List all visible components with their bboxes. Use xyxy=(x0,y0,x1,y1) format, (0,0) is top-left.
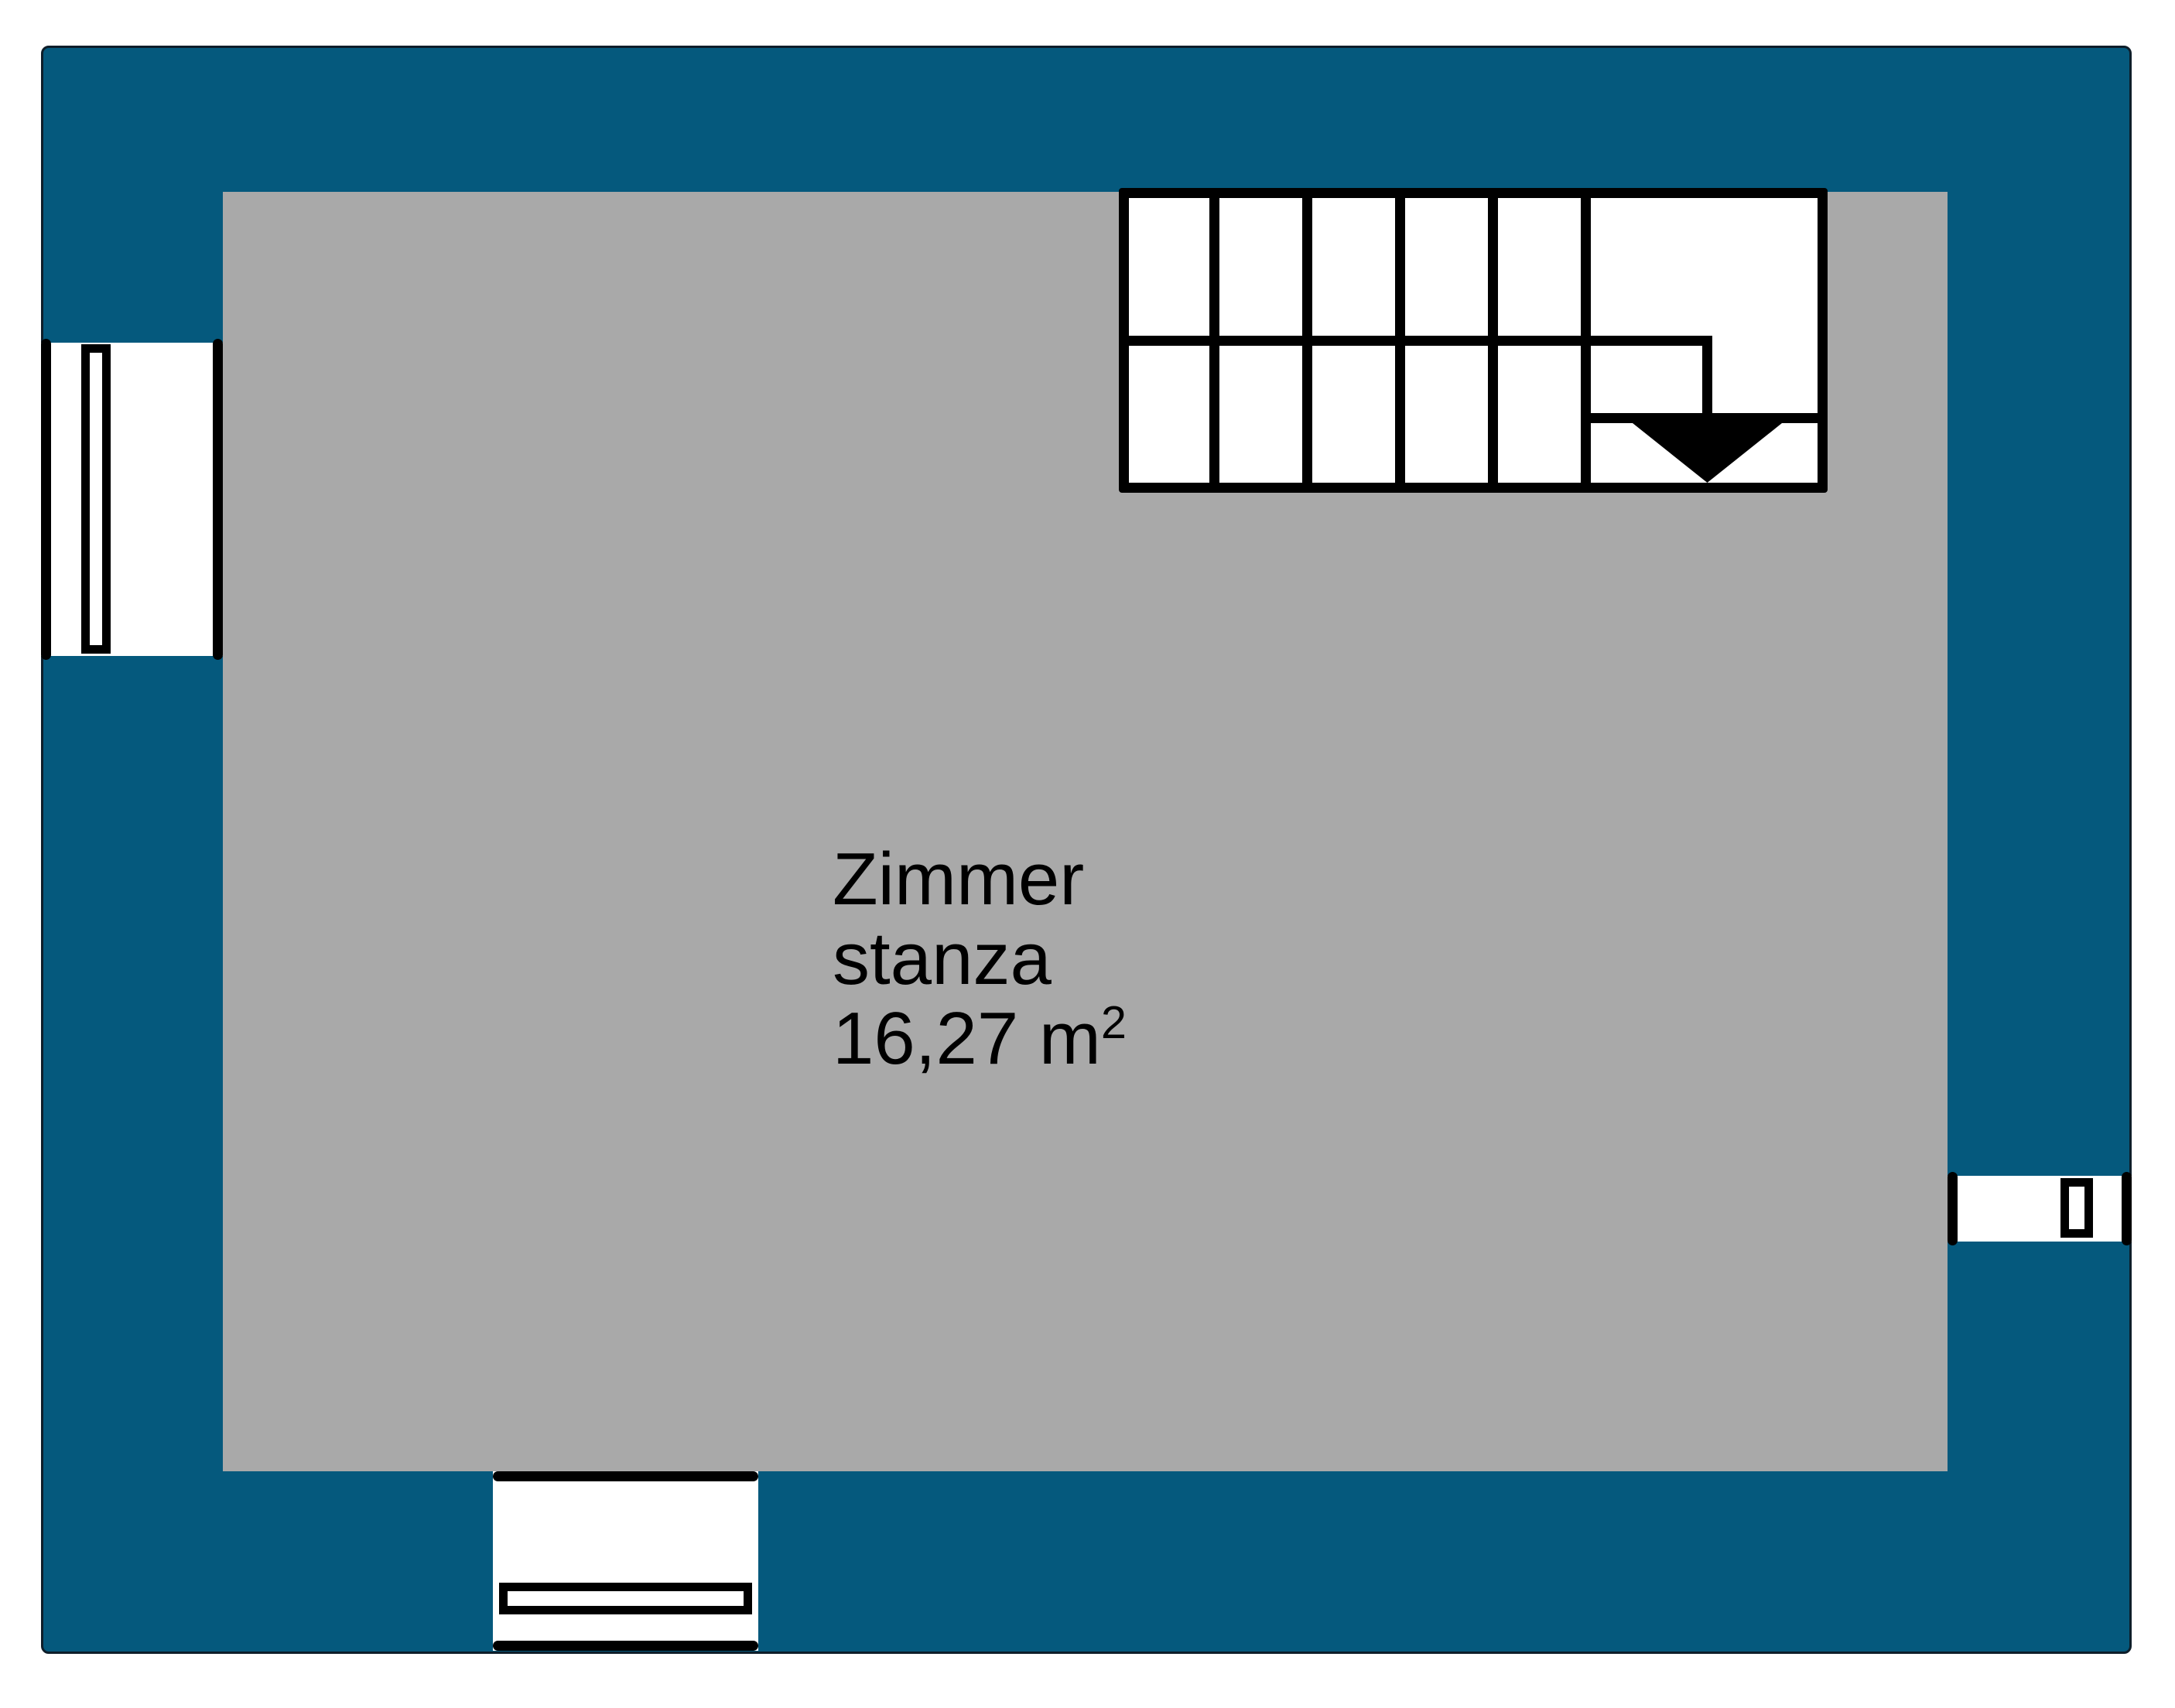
room-area: 16,27 m2 xyxy=(833,999,1127,1078)
room-name-it: stanza xyxy=(833,919,1127,999)
stair-flight-divider-line xyxy=(1129,336,1712,346)
room-label: Zimmer stanza 16,27 m2 xyxy=(833,839,1127,1078)
window-bottom xyxy=(493,1471,758,1651)
window-frame xyxy=(81,344,111,654)
stair-down-arrow-icon xyxy=(1633,423,1782,483)
window-outer-face-line xyxy=(493,1641,758,1651)
window-frame xyxy=(2060,1178,2093,1238)
stair-winder-step-line xyxy=(1702,336,1712,423)
window-inner-face-line xyxy=(1948,1172,1958,1245)
window-left xyxy=(41,343,223,656)
window-frame xyxy=(499,1583,752,1614)
window-inner-face-line xyxy=(493,1471,758,1481)
stair-landing-edge-line xyxy=(1581,413,1818,423)
staircase xyxy=(1119,188,1828,493)
room-area-value: 16,27 m xyxy=(833,997,1101,1080)
room-area-exponent: 2 xyxy=(1101,996,1127,1048)
room-name-de: Zimmer xyxy=(833,839,1127,919)
window-right xyxy=(1948,1176,2132,1242)
floor-plan-canvas: Zimmer stanza 16,27 m2 xyxy=(0,0,2175,1708)
window-inner-face-line xyxy=(213,339,223,660)
window-outer-face-line xyxy=(41,339,51,660)
window-outer-face-line xyxy=(2122,1172,2132,1245)
